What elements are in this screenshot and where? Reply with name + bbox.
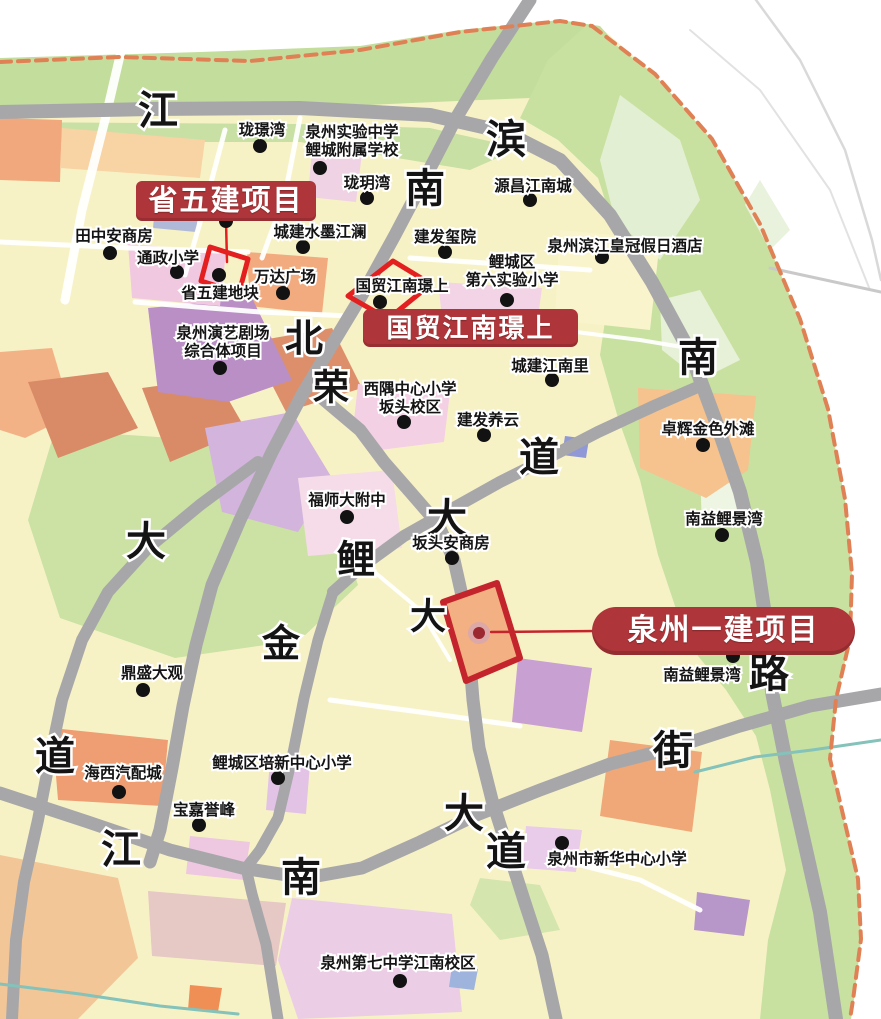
poi-dot-xiyu-zhongxin-xiaoxue [397,415,411,429]
poi-dot-xinhua-zhongxin-xiaoxue [555,836,569,850]
zone-orange-left-top [0,118,62,182]
yijian-marker-core [473,627,485,639]
road-name-char: 鲤 [337,539,375,581]
poi-dot-baojia-yufeng [192,818,206,832]
poi-dot-haixi-qipeicheng [112,785,126,799]
poi-label-jianfa-xiyuan: 建发玺院 [414,227,477,246]
poi-label-longyuewan: 珑玥湾 [344,173,391,192]
poi-dot-tianzhongan-shangfang [103,246,117,260]
project-banner-shengwujian: 省五建项目 [136,181,316,221]
poi-label-guomao-jiangnan-jingshang-small: 国贸江南璟上 [355,276,449,295]
poi-label-dingsheng-daguan: 鼎盛大观 [121,663,184,682]
poi-label-quanzhou-shiyan-zhongxue: 泉州实验中学 [305,122,398,141]
poi-label-zhuohui-jinse-waitan: 卓辉金色外滩 [661,419,755,438]
poi-label-diliu-shiyan-xiaoxue: 鲤城区 [488,252,536,271]
poi-label-wanda-guangchang: 万达广场 [253,267,316,286]
poi-label-xiyu-zhongxin-xiaoxue: 坂头校区 [379,397,442,416]
poi-dot-fushida-fuzhong [340,510,354,524]
road-name-char: 南 [678,336,718,380]
poi-label-xinhua-zhongxin-xiaoxue: 泉州市新华中心小学 [547,849,687,868]
poi-label-binjiang-huangguan-jiudian: 泉州滨江皇冠假日酒店 [547,236,702,255]
poi-label-longjingwan: 珑璟湾 [239,120,286,139]
map-stage: 江滨南北荣南道大鲤大金大路道江南大道街珑璟湾泉州实验中学鲤城附属学校珑玥湾源昌江… [0,0,881,1019]
road-name-char: 江 [138,89,178,133]
road-name-char: 金 [261,622,301,665]
road-name-char: 南 [281,856,321,900]
poi-dot-bantou-anshangfang [445,551,459,565]
poi-label-baojia-yufeng: 宝嘉誉峰 [173,800,236,819]
poi-dot-dingsheng-daguan [136,683,150,697]
poi-label-tongzheng-xiaoxue: 通政小学 [137,248,199,267]
poi-dot-chengjian-jiangnanli [545,373,559,387]
poi-label-nanyi-lijingwan-south: 南益鲤景湾 [663,665,741,684]
poi-dot-quanzhou-shiyan-zhongxue [313,161,327,175]
project-banner-yijian: 泉州一建项目 [592,607,855,655]
yijian-leader-line [491,631,597,632]
poi-label-diqizhongxue-jiangnan-xiaoqu: 泉州第七中学江南校区 [320,953,476,972]
poi-dot-jianfa-xiyuan [438,245,452,259]
poi-dot-peixin-zhongxin-xiaoxue [271,771,285,785]
road-name-char: 街 [652,729,693,773]
poi-label-fushida-fuzhong: 福师大附中 [307,490,386,509]
poi-dot-longyuewan [360,191,374,205]
road-name-char: 大 [126,520,166,564]
road-name-char: 大 [410,596,446,637]
poi-dot-guomao-jiangnan-jingshang-small [373,295,387,309]
poi-dot-diliu-shiyan-xiaoxue [500,293,514,307]
road-name-char: 道 [519,436,559,480]
zone-purple-bottom [512,658,592,732]
road-name-char: 道 [35,735,75,779]
poi-label-yuanchang-jiangnancheng: 源昌江南城 [494,176,572,195]
poi-label-shengwujian-dikuai: 省五建地块 [180,283,259,302]
poi-dot-wanda-guangchang [276,286,290,300]
road-name-char: 南 [405,167,445,211]
road-name-char: 大 [444,792,484,836]
poi-label-bantou-anshangfang: 坂头安商房 [412,533,490,552]
poi-label-chengjian-shuimo-jianglan: 城建水墨江澜 [273,222,366,241]
poi-dot-shengwujian-dikuai [212,268,226,282]
poi-label-tianzhongan-shangfang: 田中安商房 [75,226,153,245]
poi-label-chengjian-jiangnanli: 城建江南里 [511,356,589,375]
poi-dot-diqizhongxue-jiangnan-xiaoqu [393,974,407,988]
poi-label-diliu-shiyan-xiaoxue: 第六实验小学 [465,270,558,289]
poi-dot-tongzheng-xiaoxue [170,265,184,279]
poi-dot-yuanchang-jiangnancheng [523,193,537,207]
poi-label-jianfa-yangyun: 建发养云 [457,410,519,429]
poi-label-nanyi-lijingwan-north: 南益鲤景湾 [685,509,763,528]
road-name-char: 路 [749,652,790,696]
poi-label-yanyi-juchang: 综合体项目 [184,341,262,360]
poi-dot-nanyi-lijingwan-north [715,528,729,542]
road-name-char: 滨 [486,118,526,162]
poi-dot-longjingwan [253,139,267,153]
road-name-char: 江 [101,828,141,872]
poi-dot-yanyi-juchang [213,361,227,375]
poi-label-xiyu-zhongxin-xiaoxue: 西隅中心小学 [363,379,456,398]
poi-dot-chengjian-shuimo-jianglan [296,240,310,254]
road-name-char: 荣 [313,367,349,408]
project-banner-guomao: 国贸江南璟上 [363,309,578,347]
poi-label-peixin-zhongxin-xiaoxue: 鲤城区培新中心小学 [211,753,352,772]
poi-label-quanzhou-shiyan-zhongxue: 鲤城附属学校 [304,140,399,159]
planning-map: 江滨南北荣南道大鲤大金大路道江南大道街珑璟湾泉州实验中学鲤城附属学校珑玥湾源昌江… [0,0,881,1019]
poi-label-haixi-qipeicheng: 海西汽配城 [84,763,162,782]
poi-dot-jianfa-yangyun [477,428,491,442]
poi-label-yanyi-juchang: 泉州演艺剧场 [176,323,269,342]
road-name-char: 道 [486,830,526,874]
road-name-char: 北 [285,318,323,360]
poi-dot-zhuohui-jinse-waitan [696,438,710,452]
